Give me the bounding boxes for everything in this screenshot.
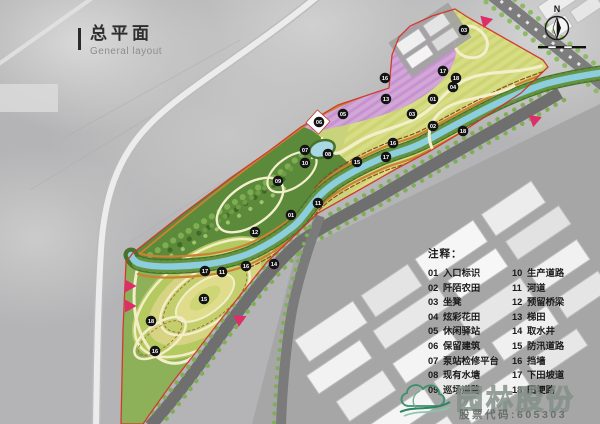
plan-marker-label: 15: [201, 297, 207, 303]
title-block: 总平面 General layout: [78, 24, 162, 57]
page-title: 总平面: [90, 24, 162, 44]
company-logo-icon: [396, 378, 454, 420]
plan-marker-label: 01: [430, 97, 436, 103]
plan-marker-label: 18: [460, 129, 466, 135]
plan-marker-label: 10: [302, 161, 308, 167]
plan-marker-label: 16: [243, 264, 249, 270]
title-accent-bar: [78, 28, 81, 50]
plan-marker-label: 04: [450, 85, 457, 91]
legend-item-13: 13梯田: [512, 310, 564, 325]
plan-marker-label: 17: [383, 155, 389, 161]
legend-item-16: 16挡墙: [512, 354, 564, 369]
watermark: 园林股份 股票代码:605303: [396, 378, 600, 424]
legend-item-14: 14取水井: [512, 324, 564, 339]
plan-marker-label: 09: [275, 179, 281, 185]
page-subtitle: General layout: [90, 46, 162, 57]
plan-marker-label: 03: [409, 112, 415, 118]
plan-marker-label: 17: [440, 69, 446, 75]
legend: 注释： 01入口标识02阡陌农田03坐凳04炫彩花田05休闲驿站06保留建筑07…: [428, 246, 598, 397]
legend-item-15: 15防汛道路: [512, 339, 564, 354]
legend-heading: 注释：: [428, 246, 598, 261]
plan-marker-label: 03: [461, 28, 467, 34]
legend-item-01: 01入口标识: [428, 266, 512, 281]
plan-marker-label: 16: [152, 349, 158, 355]
plan-marker-label: 05: [340, 112, 346, 118]
legend-item-10: 10生产道路: [512, 266, 564, 281]
compass: N: [532, 2, 592, 54]
legend-item-12: 12预留桥梁: [512, 295, 564, 310]
plan-marker-label: 16: [382, 76, 388, 82]
legend-item-07: 07泵站检修平台: [428, 354, 512, 369]
plan-marker-label: 11: [219, 270, 225, 276]
masterplan-page: 0317180401161303021805060708101615170911…: [0, 0, 600, 424]
legend-item-05: 05休闲驿站: [428, 324, 512, 339]
plan-marker-label: 07: [302, 148, 308, 154]
legend-item-02: 02阡陌农田: [428, 281, 512, 296]
plan-marker-label: 18: [453, 76, 459, 82]
north-label: N: [554, 4, 561, 14]
plan-marker-label: 15: [354, 160, 360, 166]
legend-item-11: 11河道: [512, 281, 564, 296]
stock-code: 股票代码:605303: [459, 407, 567, 422]
north-arrow-icon: N: [532, 2, 592, 54]
plan-marker-label: 12: [252, 230, 258, 236]
plan-marker-label: 18: [148, 319, 154, 325]
plan-marker-label: 17: [202, 269, 208, 275]
plan-marker-label: 08: [325, 152, 331, 158]
scale-bar: [538, 46, 586, 48]
legend-item-04: 04炫彩花田: [428, 310, 512, 325]
plan-marker-label: 06: [316, 120, 322, 126]
plan-marker-label: 13: [383, 97, 389, 103]
plan-marker-label: 01: [288, 213, 294, 219]
plan-marker-label: 02: [430, 124, 436, 130]
plan-marker-label: 16: [390, 141, 396, 147]
legend-item-03: 03坐凳: [428, 295, 512, 310]
plan-marker-label: 11: [315, 201, 321, 207]
plan-marker-label: 14: [271, 262, 278, 268]
legend-item-06: 06保留建筑: [428, 339, 512, 354]
